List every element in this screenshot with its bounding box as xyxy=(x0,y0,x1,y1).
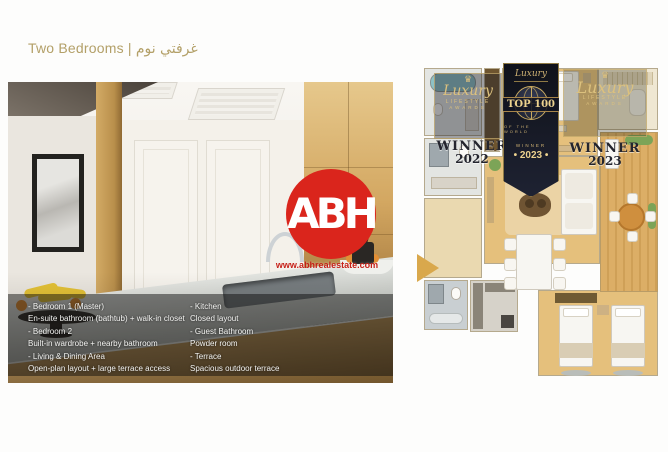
pillow xyxy=(615,308,641,317)
powder-vanity xyxy=(429,313,463,324)
dining-chair xyxy=(553,238,566,251)
feature-list-right: - Kitchen Closed layout - Guest Bathroom… xyxy=(190,301,279,375)
badge-lifestyle-2022: ♛ Luxury LIFESTYLE AWARDS xyxy=(434,73,502,139)
ribbon-rule xyxy=(514,81,548,82)
floor-plan: ♛ Luxury LIFESTYLE AWARDS WINNER 2022 Lu… xyxy=(420,64,660,376)
badge-line2: AWARDS xyxy=(564,101,646,106)
globe-wrap: TOP 100 xyxy=(514,86,548,120)
sofa-cushion xyxy=(565,203,593,229)
dining-chair xyxy=(504,258,517,271)
feature-heading: - Living & Dining Area xyxy=(28,351,185,363)
folded-blanket xyxy=(559,343,593,358)
tray xyxy=(537,199,546,208)
feature-detail: En-suite bathroom (bathtub) + walk-in cl… xyxy=(28,313,185,325)
feature-list-left: - Bedroom 1 (Master) En-suite bathroom (… xyxy=(28,301,185,375)
fridge xyxy=(501,315,514,328)
cabinet-seam xyxy=(304,167,393,168)
kitchen-photo: ABH www.abhrealestate.com - Bedroom 1 (M… xyxy=(8,82,393,383)
tray xyxy=(525,199,534,208)
dining-chair xyxy=(504,238,517,251)
feature-heading: - Guest Bathroom xyxy=(190,326,279,338)
room-guest-bathroom xyxy=(424,280,468,330)
winner-year: 2023 xyxy=(566,155,644,168)
terrace-chair xyxy=(627,231,638,242)
winner-2023-label: WINNER 2023 xyxy=(566,142,644,168)
entrance-arrow-icon xyxy=(417,254,439,282)
coffee-table xyxy=(519,193,551,217)
feature-detail: Closed layout xyxy=(190,313,279,325)
feature-detail: Spacious outdoor terrace xyxy=(190,363,279,375)
ribbon-winner: WINNER xyxy=(516,143,546,148)
dining-chair xyxy=(553,258,566,271)
terrace-chair xyxy=(645,211,656,222)
dining-chair xyxy=(553,277,566,290)
ribbon-subtitle: OF THE WORLD xyxy=(504,124,558,134)
toilet xyxy=(451,287,461,300)
page-title: Two Bedrooms | غرفتي نوم xyxy=(28,40,198,57)
terrace-chair xyxy=(609,211,620,222)
badge-brand: Luxury xyxy=(564,80,646,95)
feature-heading: - Kitchen xyxy=(190,301,279,313)
abh-website: www.abhrealestate.com xyxy=(260,260,393,270)
feature-detail: Powder room xyxy=(190,338,279,350)
terrace-chair xyxy=(627,193,638,204)
abh-monogram: ABH xyxy=(287,193,375,235)
dining-chair xyxy=(504,277,517,290)
badge-brand: Luxury xyxy=(435,84,501,99)
feature-heading: - Bedroom 1 (Master) xyxy=(28,301,185,313)
feature-heading: - Bedroom 2 xyxy=(28,326,185,338)
wardrobe-2 xyxy=(555,293,597,303)
media-console xyxy=(487,177,494,223)
listing-card: Two Bedrooms | غرفتي نوم xyxy=(0,0,668,452)
rug xyxy=(613,370,643,376)
feature-detail: Built-in wardrobe + nearby bathroom xyxy=(28,338,185,350)
feature-heading: - Terrace xyxy=(190,351,279,363)
badge-lifestyle-2023: ♛ Luxury LIFESTYLE AWARDS xyxy=(563,69,647,137)
shower xyxy=(428,284,444,304)
wall-art xyxy=(32,154,84,252)
photo-feature-overlay: - Bedroom 1 (Master) En-suite bathroom (… xyxy=(8,294,393,376)
top100-ribbon: Luxury TOP 100 OF THE WORLD WINNER • 202… xyxy=(503,63,559,197)
nightstand xyxy=(597,305,609,315)
badge-line2: AWARDS xyxy=(435,105,501,110)
ribbon-year: • 2023 • xyxy=(514,150,549,161)
room-bedroom-2 xyxy=(538,290,658,376)
abh-logo: ABH xyxy=(286,169,376,259)
sofa-cushion xyxy=(565,173,593,199)
terrace-table xyxy=(617,203,645,231)
dining-table xyxy=(516,234,552,290)
title-english: Two Bedrooms xyxy=(28,40,124,56)
winner-year: 2022 xyxy=(434,153,510,166)
vanity xyxy=(431,177,477,189)
folded-blanket xyxy=(611,343,645,358)
pillow xyxy=(563,308,589,317)
ceiling-vent xyxy=(188,88,285,120)
ribbon-brand: Luxury xyxy=(515,69,547,79)
title-arabic: غرفتي نوم xyxy=(136,41,198,57)
title-separator: | xyxy=(128,40,132,56)
feature-detail: Open-plan layout + large terrace access xyxy=(28,363,185,375)
rug xyxy=(561,370,591,376)
kitchen-counter xyxy=(473,283,483,329)
top100-title: TOP 100 xyxy=(503,97,559,112)
winner-2022-label: WINNER 2022 xyxy=(434,140,510,166)
